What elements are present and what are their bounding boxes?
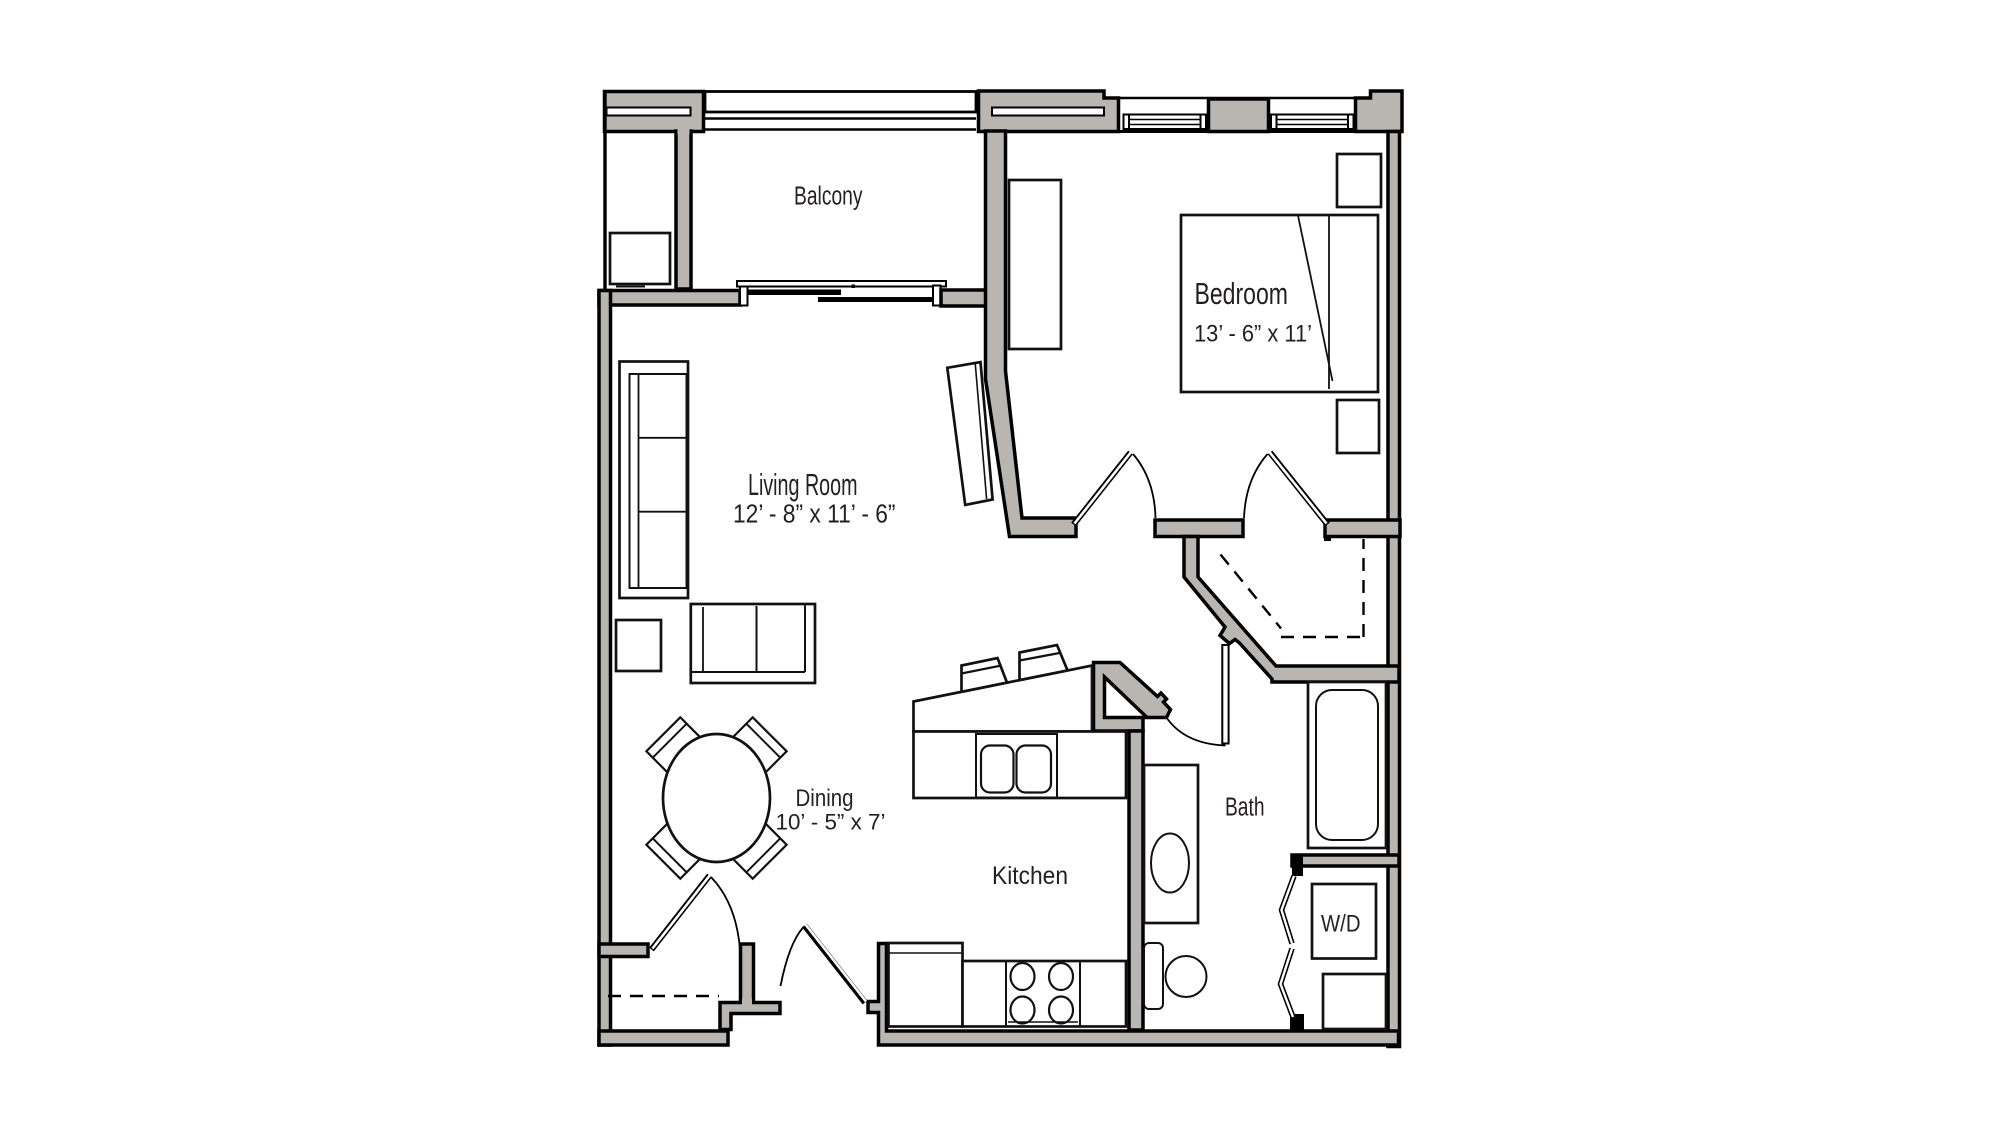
svg-text:W/D: W/D [1321,911,1361,938]
svg-text:Kitchen: Kitchen [992,862,1068,890]
svg-text:13’ - 6” x 11’: 13’ - 6” x 11’ [1194,321,1312,348]
svg-text:Living Room: Living Room [748,468,858,502]
svg-text:Bath: Bath [1225,794,1265,822]
svg-text:Balcony: Balcony [794,183,863,211]
svg-text:12’ - 8” x 11’ - 6”: 12’ - 8” x 11’ - 6” [733,501,896,529]
svg-text:Bedroom: Bedroom [1195,276,1289,311]
svg-text:10’ - 5” x 7’: 10’ - 5” x 7’ [776,810,886,835]
svg-text:Dining: Dining [796,785,854,812]
